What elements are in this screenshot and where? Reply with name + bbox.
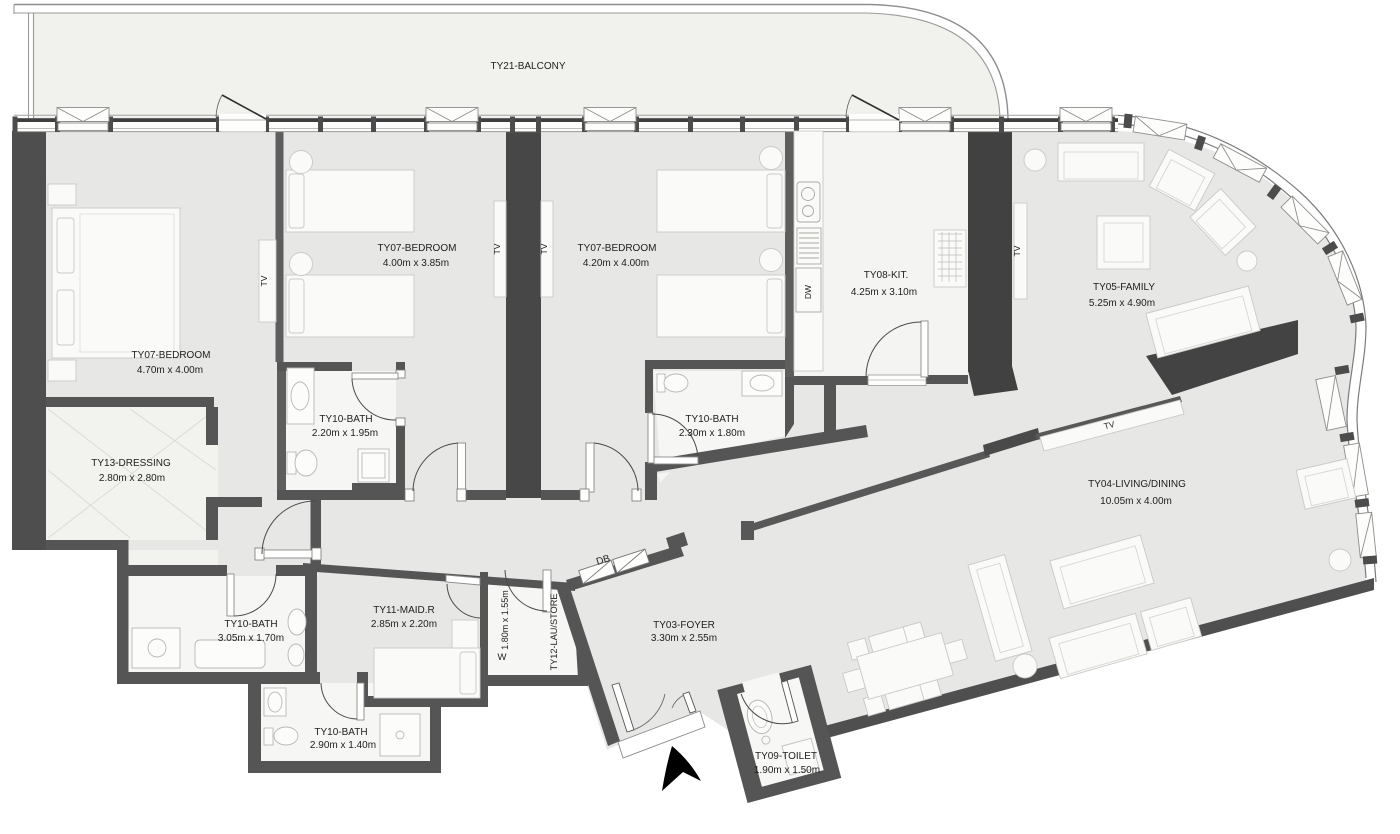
- svg-text:2.30m x 1.80m: 2.30m x 1.80m: [679, 428, 745, 439]
- svg-text:TY07-BEDROOM: TY07-BEDROOM: [578, 243, 657, 254]
- svg-text:4.20m x 4.00m: 4.20m x 4.00m: [583, 258, 649, 269]
- svg-text:2.90m x 1.40m: 2.90m x 1.40m: [310, 740, 376, 751]
- svg-text:4.70m x 4.00m: 4.70m x 4.00m: [137, 365, 203, 376]
- svg-text:4.00m x 3.85m: 4.00m x 3.85m: [383, 258, 449, 269]
- svg-text:DW: DW: [803, 285, 813, 299]
- svg-text:TV: TV: [1012, 245, 1022, 256]
- svg-text:3.05m x 1.70m: 3.05m x 1.70m: [218, 633, 284, 644]
- svg-text:TY21-BALCONY: TY21-BALCONY: [490, 61, 565, 72]
- svg-text:TY10-BATH: TY10-BATH: [224, 619, 277, 630]
- svg-text:TV: TV: [492, 243, 502, 254]
- svg-text:TY09-TOILET: TY09-TOILET: [755, 751, 817, 762]
- svg-text:TY04-LIVING/DINING: TY04-LIVING/DINING: [1088, 479, 1186, 490]
- svg-text:TY05-FAMILY: TY05-FAMILY: [1093, 282, 1155, 293]
- svg-text:TV: TV: [539, 243, 549, 254]
- svg-text:10.05m x 4.00m: 10.05m x 4.00m: [1100, 496, 1172, 507]
- svg-text:4.25m x 3.10m: 4.25m x 3.10m: [851, 287, 917, 298]
- svg-text:TY07-BEDROOM: TY07-BEDROOM: [132, 350, 211, 361]
- svg-text:1.80m x 1.55m: 1.80m x 1.55m: [500, 590, 510, 650]
- svg-text:2.80m x 2.80m: 2.80m x 2.80m: [99, 473, 165, 484]
- svg-text:TY11-MAID.R: TY11-MAID.R: [373, 605, 435, 616]
- svg-text:2.20m x 1.95m: 2.20m x 1.95m: [312, 428, 378, 439]
- svg-text:3.30m x 2.55m: 3.30m x 2.55m: [651, 633, 717, 644]
- svg-text:1.90m x 1.50m: 1.90m x 1.50m: [754, 765, 820, 776]
- svg-text:TY07-BEDROOM: TY07-BEDROOM: [378, 243, 457, 254]
- svg-text:TY08-KIT.: TY08-KIT.: [864, 270, 908, 281]
- svg-text:2.85m x 2.20m: 2.85m x 2.20m: [371, 619, 437, 630]
- svg-text:W: W: [498, 652, 507, 663]
- svg-text:TY03-FOYER: TY03-FOYER: [653, 620, 715, 631]
- svg-text:TY13-DRESSING: TY13-DRESSING: [91, 458, 171, 469]
- svg-text:TY12-LAU/STORE: TY12-LAU/STORE: [549, 594, 559, 671]
- svg-text:TV: TV: [259, 275, 269, 286]
- svg-text:TY10-BATH: TY10-BATH: [319, 414, 372, 425]
- svg-text:TY10-BATH: TY10-BATH: [685, 414, 738, 425]
- svg-text:5.25m x 4.90m: 5.25m x 4.90m: [1089, 298, 1155, 309]
- svg-text:TY10-BATH: TY10-BATH: [314, 727, 367, 738]
